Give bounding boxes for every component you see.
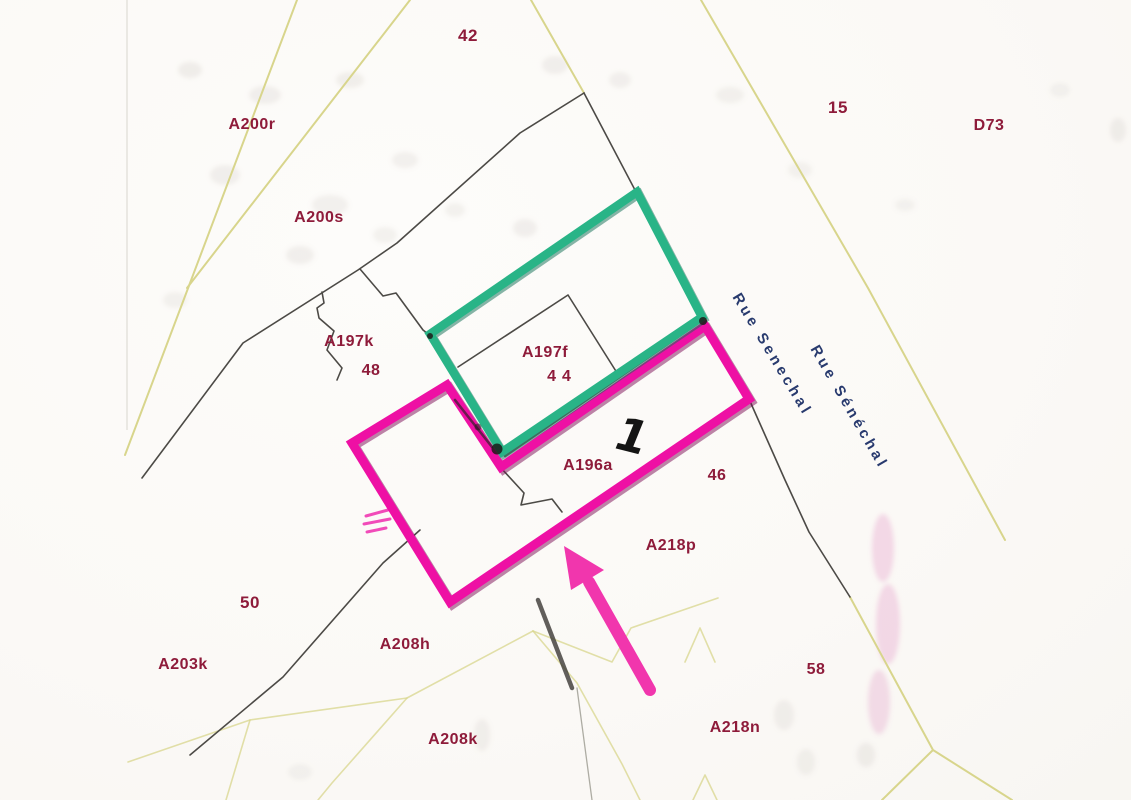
parcel-label-a203k: A203k [158,656,208,674]
parcel-label-50: 50 [240,593,260,613]
parcel-label-46: 46 [708,467,727,485]
parcel-label-a197f: A197f [522,344,568,362]
parcel-label-44: 44 [547,368,577,386]
cadastral-map: 1 4215D73A200rA200sA197k48A197f44A196a46… [0,0,1131,800]
pink-scribble-marks [364,510,390,532]
pink-arrow [564,546,650,690]
parcel-label-48: 48 [362,362,381,380]
parcel-label-a218n: A218n [710,719,761,737]
parcel-label-a208k: A208k [428,731,478,749]
parcel-label-a200s: A200s [294,209,344,227]
parcel-label-58: 58 [807,661,826,679]
parcel-label-a208h: A208h [380,636,431,654]
parcel-label-a197k: A197k [324,333,374,351]
parcel-label-a196a: A196a [563,457,613,475]
map-drawing [0,0,1131,800]
parcel-label-a218p: A218p [646,537,697,555]
parcel-label-42: 42 [458,26,478,46]
parcel-label-d73: D73 [974,117,1005,135]
parcel-label-a200r: A200r [229,116,276,134]
parcel-label-15: 15 [828,98,848,118]
